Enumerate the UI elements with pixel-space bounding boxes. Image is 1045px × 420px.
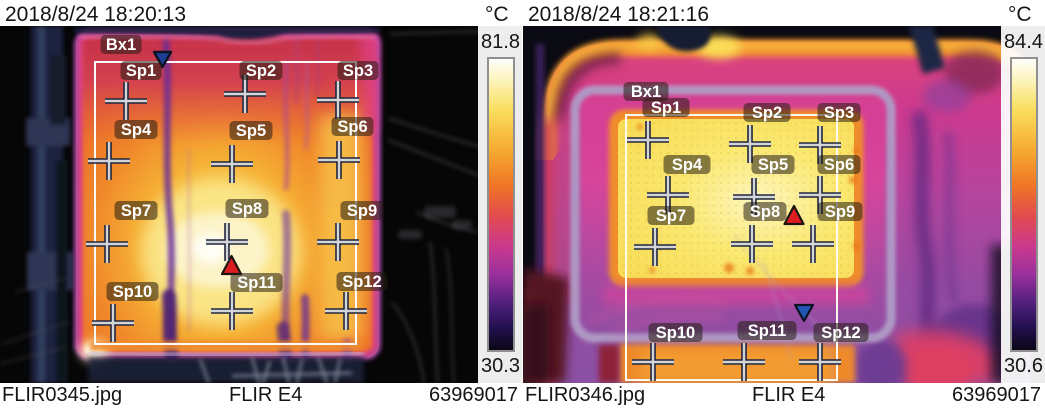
svg-text:Sp9: Sp9 <box>347 202 377 220</box>
svg-text:Sp6: Sp6 <box>337 118 367 136</box>
svg-text:Sp5: Sp5 <box>236 122 266 140</box>
svg-text:Sp3: Sp3 <box>343 62 373 80</box>
svg-text:Sp8: Sp8 <box>750 203 780 221</box>
svg-text:Sp8: Sp8 <box>232 200 262 218</box>
svg-text:Sp1: Sp1 <box>651 99 681 117</box>
svg-text:Sp2: Sp2 <box>752 104 782 122</box>
svg-text:Sp10: Sp10 <box>656 324 695 342</box>
svg-text:Sp6: Sp6 <box>824 156 854 174</box>
svg-text:Sp2: Sp2 <box>246 62 276 80</box>
svg-text:Sp9: Sp9 <box>825 203 855 221</box>
svg-text:Sp3: Sp3 <box>824 104 854 122</box>
svg-text:Sp4: Sp4 <box>121 121 152 139</box>
svg-text:Sp12: Sp12 <box>342 273 381 291</box>
svg-text:Sp1: Sp1 <box>126 62 156 80</box>
svg-text:Sp11: Sp11 <box>748 322 787 340</box>
svg-text:Sp7: Sp7 <box>121 202 151 220</box>
svg-text:Sp10: Sp10 <box>113 283 152 301</box>
svg-text:Sp7: Sp7 <box>656 207 686 225</box>
svg-text:Sp5: Sp5 <box>758 156 788 174</box>
svg-text:Sp11: Sp11 <box>237 274 276 292</box>
svg-text:Sp12: Sp12 <box>821 324 860 342</box>
svg-text:Bx1: Bx1 <box>106 36 136 54</box>
svg-text:Sp4: Sp4 <box>672 156 703 174</box>
